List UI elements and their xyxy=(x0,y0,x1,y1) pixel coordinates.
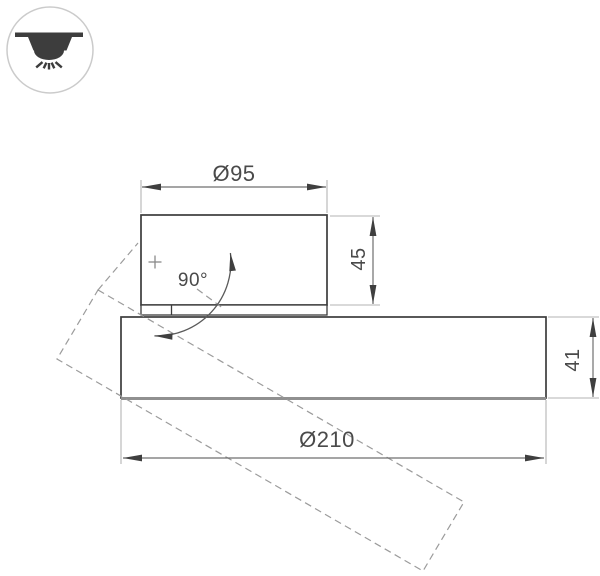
mounting-flange xyxy=(141,305,327,315)
arrowhead-down xyxy=(590,378,597,397)
technical-drawing: 90° Ø95 45 41 xyxy=(0,0,600,576)
base-height-label: 41 xyxy=(562,348,584,371)
arrowhead-up xyxy=(370,217,377,236)
arrowhead-down xyxy=(370,285,377,304)
dim-base-height: 41 xyxy=(548,317,599,398)
dim-top-diameter: Ø95 xyxy=(141,161,327,213)
dim-base-diameter: Ø210 xyxy=(121,400,546,464)
dim-top-height: 45 xyxy=(330,216,380,305)
arrowhead-left xyxy=(123,455,142,462)
top-height-label: 45 xyxy=(348,247,370,270)
arrowhead-right xyxy=(307,184,326,191)
arrowhead-up xyxy=(590,318,597,337)
technical-drawing-page: 90° Ø95 45 41 xyxy=(0,0,600,576)
base-diameter-label: Ø210 xyxy=(299,427,355,452)
top-housing xyxy=(141,215,327,305)
arrowhead-left xyxy=(142,184,161,191)
rotated-bracket-edge xyxy=(98,243,138,290)
lamp-head xyxy=(121,317,546,398)
rotation-angle-label: 90° xyxy=(178,270,208,291)
fixture-solid-views xyxy=(121,215,546,398)
top-diameter-label: Ø95 xyxy=(212,161,255,186)
arrowhead-right xyxy=(525,455,544,462)
lamp-body xyxy=(28,37,72,51)
ceiling-bar xyxy=(15,33,83,38)
mount-type-badge xyxy=(7,7,93,93)
